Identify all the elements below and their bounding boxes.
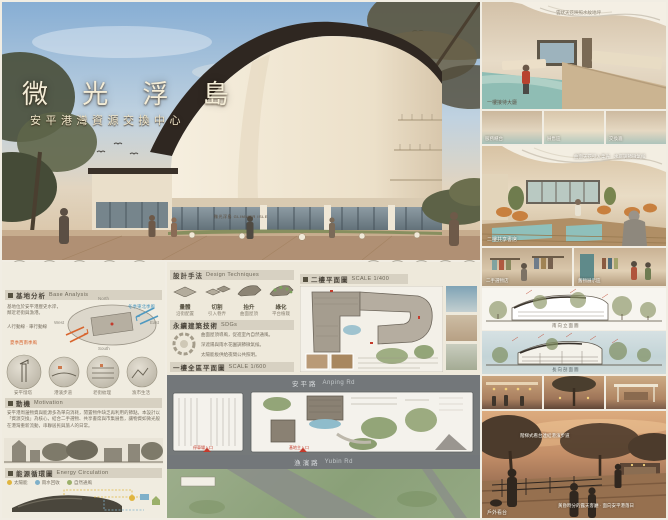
rain-dot bbox=[35, 480, 40, 485]
section-caption: 長向剖面圖 bbox=[552, 367, 580, 373]
person-hoodie bbox=[622, 211, 647, 247]
base-analysis-en: Base Analysis bbox=[49, 292, 88, 298]
plan1f-scale: SCALE 1/600 bbox=[229, 364, 267, 370]
legend-rain: 雨水回收 bbox=[42, 480, 60, 485]
lounge-note: 曲面天花引入柔光 · 水庭調節微氣候 bbox=[574, 154, 646, 160]
compass-south: South bbox=[98, 346, 110, 352]
section-header-plan1f: 一樓全區平面圖 SCALE 1/600 bbox=[170, 362, 294, 372]
vignette-caption: 漁市生活 bbox=[122, 390, 160, 396]
context-green bbox=[167, 469, 480, 518]
site-plan-drawing bbox=[167, 390, 480, 455]
thumb-caption: 二手選物店 bbox=[486, 278, 509, 284]
energy-en: Energy Circulation bbox=[57, 470, 109, 476]
section-header-base-analysis: 基地分析 Base Analysis bbox=[5, 290, 162, 300]
elevation-drawing: 南向立面圖 bbox=[482, 288, 666, 330]
context-roads bbox=[167, 469, 480, 518]
plan2f-scale: SCALE 1/400 bbox=[352, 276, 390, 282]
section-header-sdgs: 永續建築技術 SDGs bbox=[170, 320, 294, 330]
building-sign: 微光浮島 GLIMMER ISLE bbox=[214, 214, 274, 220]
thumb-thrift-shop: 二手選物店 bbox=[482, 248, 572, 286]
base-analysis-zh: 基地分析 bbox=[16, 290, 46, 300]
section-header-motivation: 動機 Motivation bbox=[5, 398, 162, 408]
thumb-courtyard-tree bbox=[544, 376, 604, 409]
terrace-note-2: 黃昏時分的露天客廳 · 面向安平港落日 bbox=[558, 503, 634, 509]
main-entry-label: 基地主入口 bbox=[289, 445, 309, 451]
plan-2f-drawing bbox=[300, 286, 443, 372]
lobby-illustration bbox=[482, 2, 666, 109]
sdgs-line-2: 深遮陽與雨水花園調節微氣候。 bbox=[201, 342, 293, 348]
lounge-caption: 二樓共享書席 bbox=[487, 236, 517, 243]
elevation-caption: 南向立面圖 bbox=[552, 323, 580, 329]
base-note-2: 人行動線 · 車行動線 bbox=[7, 324, 61, 330]
compass-east: East bbox=[150, 320, 159, 326]
bullet-square bbox=[303, 277, 308, 282]
terrace-illustration bbox=[482, 411, 666, 518]
design-en: Design Techniques bbox=[206, 272, 259, 278]
sdgs-line-3: 太陽能板供給夜間公共照明。 bbox=[201, 352, 293, 358]
design-zh: 設計手法 bbox=[173, 270, 203, 280]
design-step-1: 量體 沿街配置 bbox=[170, 282, 200, 317]
thumb-display: 展售區 bbox=[544, 111, 604, 144]
motivation-body: 安平港周邊物資與能源多為單向消耗，閒置物件缺乏再利用的節點。本設計以「資源交換」… bbox=[7, 410, 160, 429]
compass-west: West bbox=[54, 320, 64, 326]
vent-dot bbox=[67, 480, 72, 485]
bullet-square bbox=[8, 471, 13, 476]
step4-diagram bbox=[267, 282, 295, 297]
design-step-3: 抬升 曲面屋頂 bbox=[234, 282, 264, 317]
plan2f-zh: 二樓平面圖 bbox=[311, 274, 349, 284]
road-anping-en: Anping Rd bbox=[322, 380, 355, 386]
middle-panel: 設計手法 Design Techniques 量體 沿街配置 切割 引入巷弄 抬… bbox=[167, 262, 480, 518]
energy-legend: 太陽能 雨水回收 自然通風 bbox=[7, 480, 92, 486]
hero-illustration bbox=[2, 2, 480, 260]
thumb-night-market bbox=[482, 376, 542, 409]
render-lounge: 二樓共享書席 曲面天花引入柔光 · 水庭調節微氣候 bbox=[482, 146, 666, 246]
sdgs-line-1: 曲面屋頂導風，促進室內自然通風。 bbox=[201, 332, 293, 338]
energy-zh: 能源循環圖 bbox=[16, 468, 54, 478]
section-header-plan2f: 二樓平面圖 SCALE 1/400 bbox=[300, 274, 408, 284]
road-yubin: 漁濱路 Yubin Rd bbox=[167, 455, 480, 469]
lobby-note: 雲狀天花映照水紋地坪 bbox=[556, 10, 601, 16]
section-drawing: 長向剖面圖 bbox=[482, 331, 666, 374]
sdgs-zh: 永續建築技術 bbox=[173, 320, 218, 330]
solar-dot bbox=[7, 480, 12, 485]
plan-thumb-2 bbox=[446, 315, 477, 341]
wind-sw-label: 夏季西南季風 bbox=[10, 340, 37, 346]
step2-diagram bbox=[203, 282, 231, 297]
motivation-sketch bbox=[4, 438, 163, 464]
site-vignettes bbox=[4, 354, 163, 390]
poster-subtitle: 安平港灣資源交換中心 bbox=[30, 112, 185, 128]
road-anping-zh: 安平路 bbox=[292, 378, 318, 388]
bullet-square bbox=[8, 401, 13, 406]
presentation-board: 微 光 浮 島 安平港灣資源交換中心 微光浮島 GLIMMER ISLE ♻ ✳… bbox=[0, 0, 668, 520]
legend-solar: 太陽能 bbox=[14, 480, 28, 485]
base-note-1: 基地位於安平港歷史水岸，鄰近老街與漁港。 bbox=[7, 304, 61, 317]
parking-entry-label: 停車場入口 bbox=[193, 445, 213, 451]
section-header-energy: 能源循環圖 Energy Circulation bbox=[5, 468, 162, 478]
lobby-caption: 一樓接待大廳 bbox=[487, 99, 517, 106]
person-walking bbox=[575, 199, 581, 216]
vignette-caption: 港濱步道 bbox=[44, 390, 82, 396]
thumb-vintage-display: 舊物展示區 bbox=[574, 248, 666, 286]
plan1f-zh: 一樓全區平面圖 bbox=[173, 362, 226, 372]
shopper bbox=[521, 263, 527, 281]
thumb-caption: 服務櫃台 bbox=[485, 136, 503, 142]
thumb-counter: 服務櫃台 bbox=[482, 111, 542, 144]
road-yubin-en: Yubin Rd bbox=[325, 459, 353, 465]
thumb-caption: 展售區 bbox=[547, 136, 561, 142]
plan-thumb-1 bbox=[446, 286, 477, 312]
sdgs-en: SDGs bbox=[221, 322, 237, 328]
site-plan-strip: 停車場入口 基地主入口 bbox=[167, 390, 480, 455]
step1-diagram bbox=[171, 282, 199, 297]
motivation-en: Motivation bbox=[34, 400, 63, 406]
design-step-2: 切割 引入巷弄 bbox=[202, 282, 232, 317]
vignette-caption: 老街紋理 bbox=[83, 390, 121, 396]
bullet-square bbox=[8, 293, 13, 298]
vignette-caption: 安平燈塔 bbox=[4, 390, 42, 396]
terrace-note-1: 階梯式看台連結港濱步道 bbox=[520, 433, 570, 439]
person-red bbox=[522, 65, 530, 94]
lounge-illustration bbox=[482, 146, 666, 246]
legend-vent: 自然通風 bbox=[74, 480, 92, 485]
design-step-4: 綠化 平台植栽 bbox=[266, 282, 296, 317]
compass-north: North bbox=[98, 296, 109, 302]
render-lobby: 一樓接待大廳 雲狀天花映照水紋地坪 bbox=[482, 2, 666, 109]
road-yubin-zh: 漁濱路 bbox=[294, 457, 320, 467]
render-terrace: 階梯式看台連結港濱步道 黃昏時分的露天客廳 · 面向安平港落日 戶外看台 bbox=[482, 411, 666, 518]
plan-thumb-3 bbox=[446, 344, 477, 370]
wind-ne-label: 冬季東北季風 bbox=[128, 304, 155, 310]
thumb-caption: 交換牆 bbox=[609, 136, 623, 142]
thumb-caption: 舊物展示區 bbox=[578, 278, 601, 284]
energy-axon-diagram bbox=[4, 488, 163, 516]
terrace-caption: 戶外看台 bbox=[487, 509, 507, 516]
thumb-pavilion bbox=[606, 376, 666, 409]
step3-diagram bbox=[235, 282, 263, 297]
sdgs-wheel bbox=[172, 332, 196, 356]
section-header-design: 設計手法 Design Techniques bbox=[170, 270, 294, 280]
motivation-zh: 動機 bbox=[16, 398, 31, 408]
poster-title: 微 光 浮 島 bbox=[22, 74, 242, 111]
hero-render: 微 光 浮 島 安平港灣資源交換中心 微光浮島 GLIMMER ISLE bbox=[2, 2, 480, 260]
road-anping: 安平路 Anping Rd bbox=[167, 375, 480, 390]
thumb-exchange-wall: 交換牆 bbox=[606, 111, 666, 144]
left-analysis-panel: 基地分析 Base Analysis 基地位於安平港歷史水岸，鄰近老街與漁港。 … bbox=[2, 262, 165, 518]
shoppers bbox=[631, 261, 651, 280]
